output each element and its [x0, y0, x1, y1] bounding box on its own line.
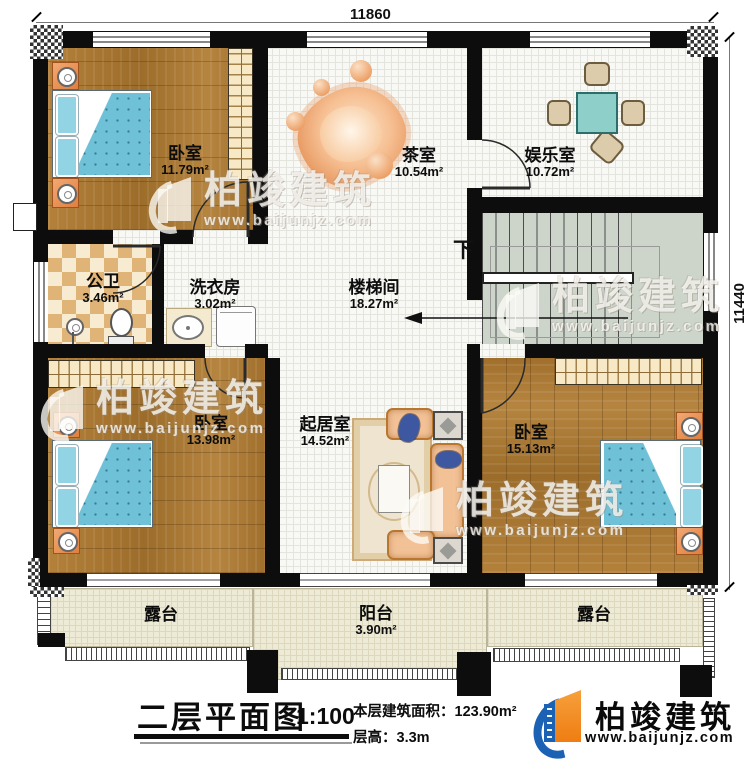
game-table [576, 92, 618, 134]
floor-area-text: 本层建筑面积：123.90m² [353, 700, 517, 721]
lamp-icon [57, 67, 77, 87]
bed [52, 90, 152, 178]
dim-tick [31, 12, 42, 23]
pillow [681, 445, 703, 485]
chair [547, 100, 571, 126]
person-figure [436, 451, 461, 468]
wall-band3-a [467, 344, 480, 358]
room-label-living: 起居室 14.52m² [300, 415, 351, 449]
window [307, 31, 427, 48]
lamp-icon [57, 184, 77, 204]
brand-logo-icon [535, 686, 589, 754]
coffee-table [378, 465, 410, 513]
room-label-entertainment: 娱乐室 10.72m² [525, 146, 576, 180]
terrace-left-railing [65, 647, 250, 661]
corner-marker [687, 26, 718, 57]
room-label-stairhall: 楼梯间 18.27m² [349, 278, 400, 312]
pillow [56, 137, 78, 177]
room-label-bath: 公卫 3.46m² [82, 272, 123, 306]
balcony-right-pillar [457, 652, 491, 696]
bed-sheet [642, 443, 676, 525]
pillow [681, 487, 703, 527]
wall-bedroom-bl-right [265, 358, 280, 573]
wall-ent-bottom [467, 197, 718, 213]
nightstand [676, 412, 703, 440]
bed-sheet [79, 443, 113, 525]
tearoom-pebble [313, 79, 330, 96]
wall-living-bedroom-br [467, 358, 482, 573]
stair-down-label: 下 [453, 234, 474, 264]
title-underline [134, 734, 349, 739]
wall-ent-left-upper [467, 48, 482, 140]
terrace-left-end-block [38, 633, 65, 647]
bed [52, 440, 153, 528]
bed [600, 440, 701, 528]
floorplan-page: 11860 11440 卧室 11.79m² 茶室 10.54m² 娱乐室 10… [0, 0, 750, 761]
plan-scale: 1:100 [296, 703, 355, 730]
room-label-terrace-left: 露台 [144, 605, 178, 624]
dim-right-value: 11440 [731, 283, 748, 324]
lamp-icon [58, 532, 78, 552]
plan-title: 二层平面图 [137, 692, 307, 737]
stair-handrail [482, 272, 634, 284]
window [703, 233, 718, 311]
corner-marker [687, 585, 718, 595]
lamp-icon [681, 417, 701, 437]
corner-marker [28, 558, 40, 588]
wall-band2-b [245, 344, 268, 358]
tearoom-pebble [286, 112, 305, 131]
room-label-bedroom-bl: 卧室 13.98m² [187, 414, 235, 448]
wardrobe [48, 360, 195, 388]
wall-band2-a [33, 344, 205, 358]
room-label-bedroom-tl: 卧室 11.79m² [161, 144, 209, 178]
wall-bedroom-tl-right [253, 48, 268, 242]
nightstand [52, 178, 79, 208]
window [530, 31, 650, 48]
balcony-left-pillar [247, 650, 278, 693]
toilet-icon [110, 308, 133, 337]
wall-band1-c [248, 230, 268, 244]
terrace-right-railing [493, 648, 680, 662]
chair [584, 62, 610, 86]
corner-marker [30, 25, 63, 59]
side-table [433, 411, 463, 440]
wall-band1-a [33, 230, 113, 244]
nightstand [52, 62, 79, 90]
room-label-tea: 茶室 10.54m² [395, 146, 443, 180]
sliding-door [87, 573, 220, 587]
dim-line-right [729, 38, 730, 590]
washing-machine [216, 306, 256, 347]
brand-url: www.baijunjz.com [585, 730, 734, 746]
lamp-icon [681, 532, 701, 552]
pillow [56, 95, 78, 135]
wall-niche [13, 203, 37, 231]
pillow [56, 445, 78, 485]
wardrobe [555, 358, 702, 385]
side-table [433, 537, 463, 564]
laundry-sink [172, 315, 204, 340]
stair-void-outline [490, 246, 660, 338]
wardrobe [228, 48, 253, 180]
wall-band3-b [525, 344, 718, 358]
window [93, 31, 210, 48]
dim-top-value: 11860 [350, 6, 391, 23]
wall-bath-laundry [152, 244, 164, 344]
window [33, 262, 48, 342]
room-label-balcony: 阳台 3.90m² [355, 604, 396, 638]
nightstand [53, 528, 80, 554]
sliding-door [300, 573, 430, 587]
pillow [56, 487, 78, 527]
lamp-icon [58, 416, 78, 436]
corner-basin [66, 318, 84, 336]
tearoom-pebble [350, 60, 372, 82]
tearoom-pebble [366, 152, 393, 179]
bed-sheet [79, 93, 113, 175]
title-underline-shadow [140, 742, 352, 744]
basin-stem [72, 332, 74, 344]
floor-height-text: 层高：3.3m [353, 726, 430, 747]
dim-tick [708, 12, 719, 23]
chair [621, 100, 645, 126]
sliding-door [525, 573, 657, 587]
room-label-laundry: 洗衣房 3.02m² [190, 278, 241, 312]
balcony-railing [281, 668, 457, 680]
nightstand [676, 527, 703, 555]
room-label-bedroom-br: 卧室 15.13m² [507, 423, 555, 457]
wall-band1-b [160, 230, 193, 244]
sofa [387, 530, 435, 560]
corner-marker [30, 587, 64, 597]
room-label-terrace-right: 露台 [577, 605, 611, 624]
nightstand [53, 412, 80, 438]
